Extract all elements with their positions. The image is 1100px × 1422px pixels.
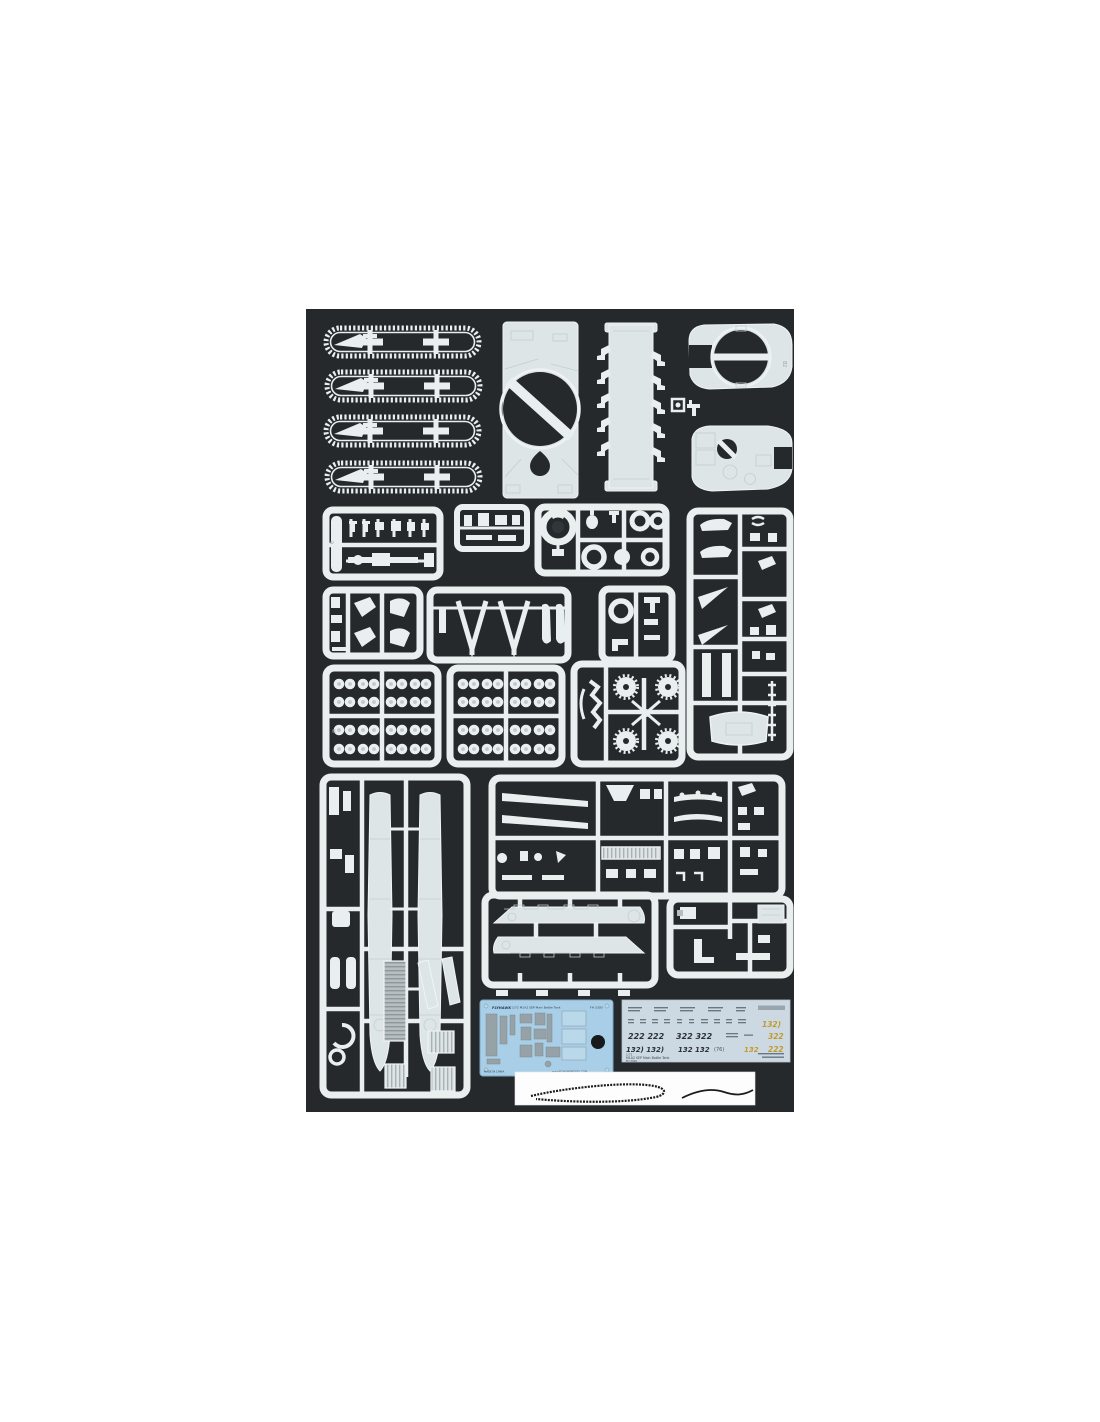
- decal-code: FH 3300: [626, 1059, 637, 1063]
- turret-shell-part: [692, 426, 792, 491]
- pe-brand-logo: FLYHAWK: [492, 1006, 511, 1010]
- decal-print-info-line2: [762, 1057, 784, 1058]
- decal-number-322-322: 322 322: [676, 1032, 713, 1041]
- turret-mold-mark: 82: [781, 361, 787, 367]
- vent-grille-3: [431, 1067, 455, 1091]
- pe-title: 1/72 M1A2 SEP Main Battle Tank: [512, 1006, 561, 1010]
- sprue-road-wheels-1: W: [326, 668, 438, 764]
- turret-roof-part: 82: [689, 324, 792, 389]
- decal-number-132-132-b: 132 132: [678, 1046, 710, 1054]
- photo-etch-fret: FLYHAWK 1/72 M1A2 SEP Main Battle Tank F…: [480, 1000, 613, 1076]
- sprue-letter-mark: W: [331, 729, 336, 733]
- pe-card-hole: [591, 1035, 605, 1049]
- upper-hull-part: [501, 322, 580, 498]
- decal-number-76: (76): [714, 1047, 724, 1053]
- product-photo-page: 82: [0, 0, 1100, 1422]
- pe-code: FH 3300: [590, 1006, 603, 1010]
- decal-number-222-222: 222 222: [628, 1032, 665, 1041]
- vent-grille-2: [385, 1064, 406, 1088]
- pe-footer-left: MADE IN CHINA: [484, 1070, 504, 1074]
- kit-contents-illustration: 82: [306, 309, 794, 1112]
- decal-number-yellow-222: 222: [768, 1045, 784, 1054]
- decal-number-yellow-132: 132): [762, 1020, 781, 1029]
- decal-sheet: 132) 222 222 322 322 322 132) 132) 132 1…: [622, 1000, 790, 1063]
- decal-number-yellow-132b: 132: [744, 1046, 759, 1054]
- sprue-letter-mark: B: [328, 541, 334, 544]
- decal-print-info-line1: [758, 1053, 784, 1054]
- decal-number-yellow-322: 322: [768, 1032, 784, 1041]
- sprue-road-wheels-2: [450, 668, 562, 764]
- kit-contents-photo: 82: [306, 309, 794, 1112]
- tow-cable-strip: [515, 1072, 755, 1105]
- vent-grille-1: [428, 1031, 454, 1053]
- engine-grille-part: [384, 961, 406, 1041]
